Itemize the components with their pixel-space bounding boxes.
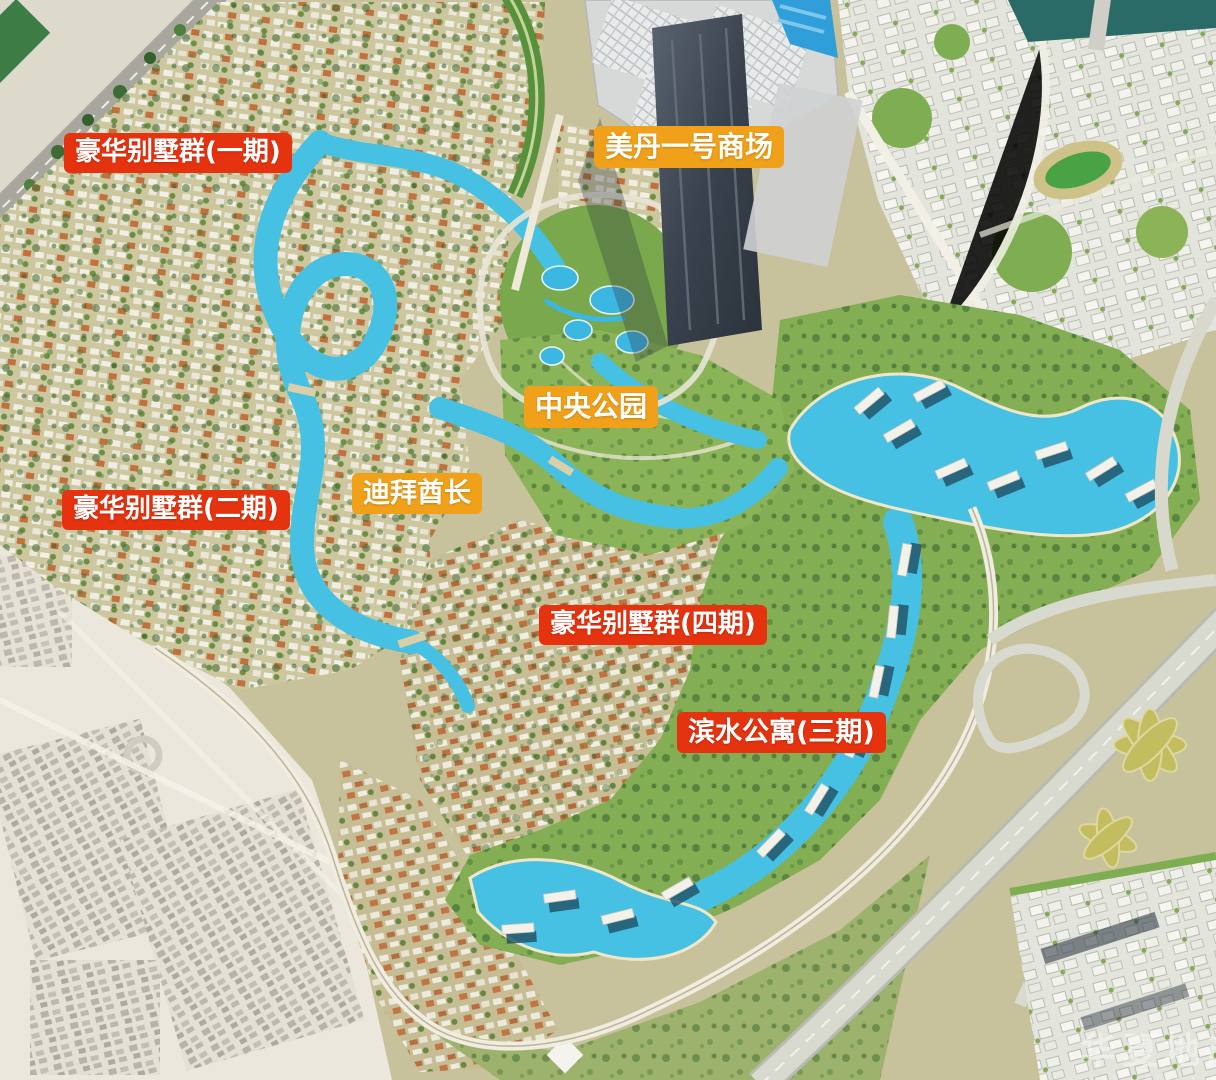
label-waterfront-apartments-phase-3: 滨水公寓(三期) [677, 712, 886, 753]
label-luxury-villas-phase-4: 豪华别墅群(四期) [539, 605, 767, 645]
watermark-subtext: HUAXIA REAL ESTATE [1080, 1075, 1216, 1080]
aerial-masterplan-map: 豪华别墅群(一期) 美丹一号商场 中央公园 迪拜酋长 豪华别墅群(二期) 豪华别… [0, 0, 1216, 1080]
watermark: 华夏地产 HUAXIA REAL ESTATE [1080, 1022, 1216, 1080]
label-central-park: 中央公园 [524, 386, 658, 428]
label-meydan-one-mall: 美丹一号商场 [594, 126, 784, 168]
watermark-text: 华夏地产 [1080, 1031, 1216, 1072]
label-luxury-villas-phase-1: 豪华别墅群(一期) [64, 133, 292, 173]
label-dubai-ruler: 迪拜酋长 [352, 473, 482, 514]
label-luxury-villas-phase-2: 豪华别墅群(二期) [62, 490, 290, 530]
